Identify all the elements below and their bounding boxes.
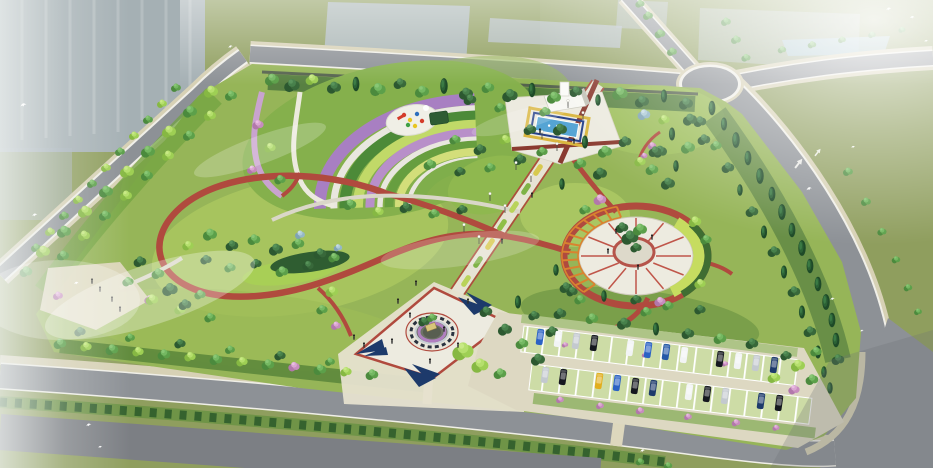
play-equipment	[408, 118, 412, 122]
conifer-tree	[781, 266, 787, 279]
play-equipment	[413, 124, 417, 128]
conifer-tree	[807, 259, 814, 273]
rendering-stage	[0, 0, 933, 468]
haze-left	[0, 0, 130, 468]
conifer-tree	[515, 296, 521, 309]
canopy	[423, 105, 429, 111]
conifer-tree	[822, 294, 829, 310]
conifer-tree	[833, 333, 840, 347]
play-equipment	[402, 113, 406, 117]
park-aerial-rendering	[0, 0, 933, 468]
conifer-tree	[799, 306, 805, 319]
conifer-tree	[553, 264, 558, 276]
haze-top	[180, 0, 933, 85]
conifer-tree	[815, 277, 822, 291]
conifer-tree	[829, 313, 836, 327]
play-equipment	[406, 123, 410, 127]
conifer-tree	[653, 323, 659, 336]
shade-structure	[429, 111, 448, 125]
play-equipment	[420, 119, 424, 123]
play-equipment	[415, 112, 419, 116]
conifer-tree	[601, 290, 606, 302]
